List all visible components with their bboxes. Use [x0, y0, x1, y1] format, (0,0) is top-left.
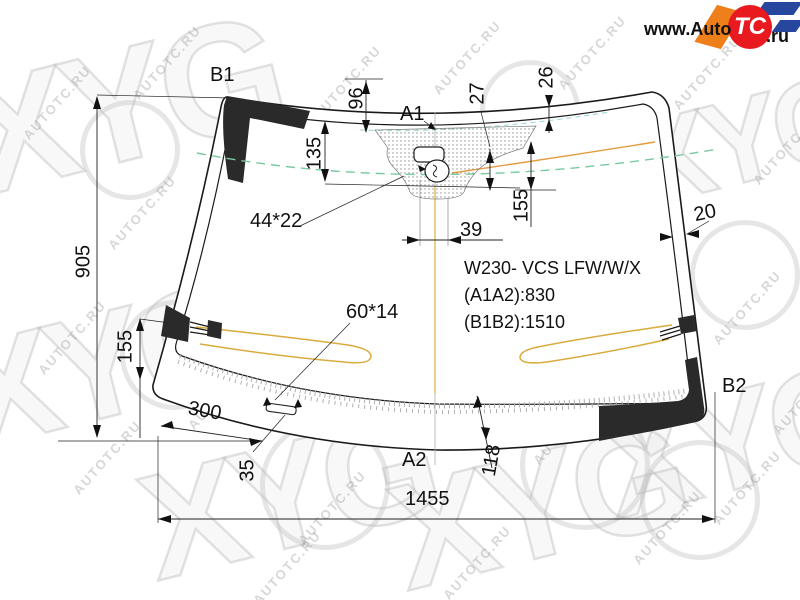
point-b1-label: B1: [210, 64, 234, 87]
dim-20-label: 20: [692, 200, 719, 227]
point-b2-label: B2: [722, 375, 746, 398]
dim-35-label: 35: [237, 441, 260, 501]
logo-www-text: www.Auto: [644, 19, 731, 40]
part-info: W230- VCS LFW/W/X (A1A2):830 (B1B2):1510: [464, 255, 641, 336]
diagram-page: XYG XYG XYG XYG XYG XYG XYG AUTOTC.RU AU…: [0, 0, 800, 600]
dim-39-label: 39: [460, 219, 482, 242]
dim-155-center-label: 155: [511, 176, 534, 236]
part-a1a2: (A1A2):830: [464, 282, 641, 309]
part-model: W230- VCS LFW/W/X: [464, 255, 641, 282]
dim-27-label: 27: [467, 64, 490, 124]
rain-sensor: [425, 160, 449, 182]
dim-155-left-label: 155: [115, 317, 138, 377]
dim-96-label: 96: [346, 69, 369, 129]
dim-135-label: 135: [304, 124, 327, 184]
logo-tc-text: TC: [734, 13, 766, 40]
point-a2-label: A2: [402, 449, 426, 472]
logo-ru-text: .ru: [766, 26, 789, 47]
dim-905-label: 905: [73, 232, 96, 292]
dim-44x22-label: 44*22: [250, 210, 302, 233]
dim-26-label: 26: [536, 48, 559, 108]
dim-1455-label: 1455: [405, 488, 450, 511]
part-b1b2: (B1B2):1510: [464, 309, 641, 336]
point-a1-label: A1: [400, 103, 424, 126]
windshield-diagram: [0, 0, 800, 600]
dim-60x14-label: 60*14: [346, 301, 398, 324]
